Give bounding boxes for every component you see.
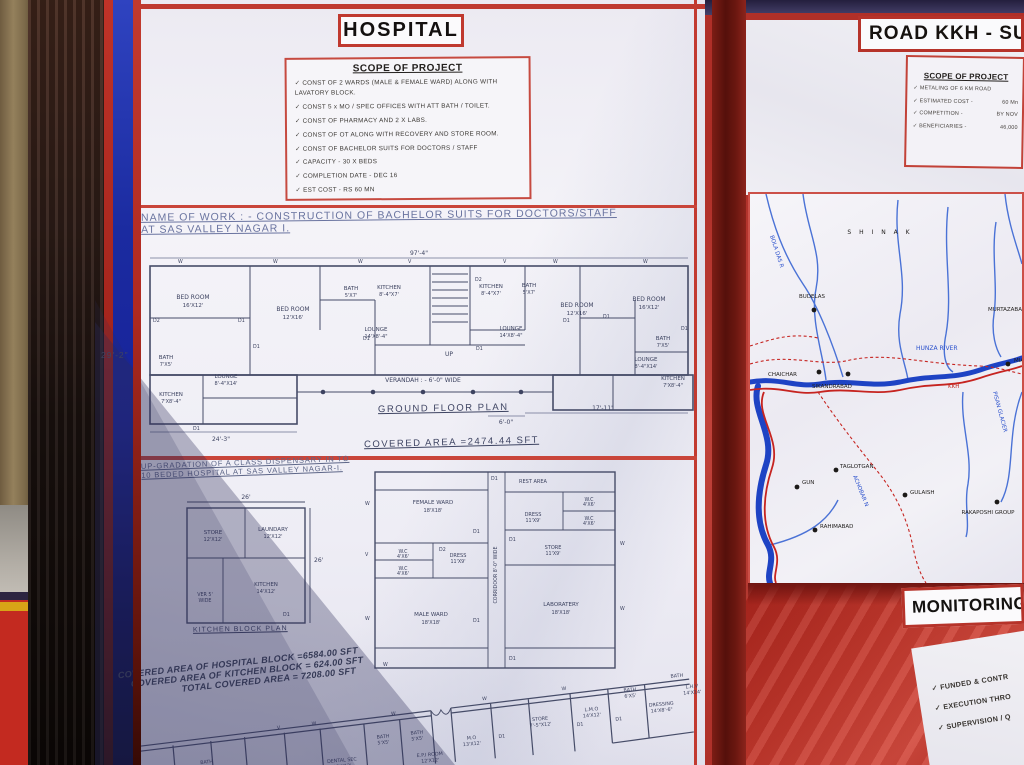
vent-marker: V [408,259,412,265]
room-size: 13'X12' [463,741,482,749]
room-size: 7'X5' [657,343,670,349]
vent-marker: V [365,552,369,558]
room-label: KITCHEN [159,392,183,398]
map-town-label: RAHIMABAD [820,524,853,530]
room-size: 5'X7' [345,293,358,299]
map-town-label: MURTAZABAD [988,307,1022,313]
room-label: BED ROOM [560,302,593,309]
window-marker: W [561,686,567,692]
map-town-label: TAGLOTGAN [839,464,874,470]
room-size: 11'X9' [525,518,540,524]
window-marker: W [273,259,278,265]
vent-marker: V [503,259,507,265]
map-town-label: RAKAPOSHI GROUP [961,510,1015,516]
route-map: S H I N A K BOLA DAS R HUNZA RIVER ACHOB… [750,194,1022,583]
room-size: 11'X9' [450,559,465,565]
monitoring-title: MONITORING [912,594,1024,618]
dim-label: 26' [314,557,324,564]
room-size: 8'-4"X7' [379,292,399,298]
map-town-label: CHAICHAR [768,372,797,378]
room-label: L.H.V [685,683,699,690]
notice-board-photo: HOSPITAL SCOPE OF PROJECT CONST OF 2 WAR… [0,0,1024,765]
road-scope-item: METALING OF 6 KM ROAD [913,85,991,92]
room-label: BED ROOM [632,296,665,303]
door-marker: D1 [509,656,516,662]
room-label: KITCHEN [479,284,503,290]
door-marker: D1 [603,314,610,320]
room-size: 7'X5' [160,362,173,368]
map-river-label: HUNZA RIVER [916,345,958,352]
room-size: 18'X18' [552,610,571,616]
room-label: LABORATERY [543,602,579,608]
room-size: 11'X9' [545,551,560,557]
door-marker: D1 [473,529,480,535]
door-marker: D1 [238,318,245,324]
door-marker: D2 [153,318,160,324]
window-marker: W [553,259,558,265]
room-label: BED ROOM [176,294,209,301]
monitoring-sheet: FUNDED & CONTR EXECUTION THRO SUPERVISIO… [911,625,1024,765]
room-label: FEMALE WARD [413,500,453,506]
window-marker: W [358,259,363,265]
room-size: 12'X16' [283,315,304,321]
door-marker: D1 [253,344,260,350]
door-marker: D1 [363,336,370,342]
room-size: 4'X6' [397,571,409,577]
room-size: 4'X6' [397,554,409,560]
room-label: BATH [522,283,537,289]
road-scope-box: SCOPE OF PROJECT METALING OF 6 KM ROAD E… [904,55,1024,169]
room-label: L.M.O [584,706,598,713]
road-scope-value: BY NOV [993,112,1018,118]
room-size: 18'X18' [424,508,443,514]
window-marker: W [620,541,625,547]
room-size: 7'X8'-4" [663,383,683,389]
map-town-label: BUDELAS [799,294,825,300]
door-marker: D2 [475,277,482,283]
road-scope-value [1015,87,1018,93]
window-marker: W [178,259,183,265]
room-size: 5'X7' [523,290,536,296]
map-river-label: BOLA DAS R [768,235,784,269]
door-marker: D1 [681,326,688,332]
board-divider-bar [712,0,746,765]
map-road-label: KKH [948,384,959,390]
room-label: BED ROOM [276,306,309,313]
room-label: DRESS [525,512,542,518]
dim-label: 26' [241,494,251,501]
up-label: UP [445,351,453,358]
road-scope-title: SCOPE OF PROJECT [914,71,1019,82]
map-poster: S H I N A K BOLA DAS R HUNZA RIVER ACHOB… [748,192,1024,585]
map-river-label: ACHOBAR N [851,475,869,508]
road-scope-item: COMPETITION - [913,110,963,117]
map-glacier-label: PISAN GLACIER [991,391,1008,433]
map-town-label: GULAISH [910,490,935,496]
corridor-label: CORRIDOOR 8'-0" WIDE [493,546,499,603]
room-label: LOUNGE [364,327,388,333]
dim-left: 29'-2" [101,350,129,360]
door-marker: D1 [491,476,498,482]
room-label: KITCHEN [377,285,401,291]
road-scope-value: 46,000 [997,124,1018,130]
dim-bottom-mid: 6'-0" [499,419,513,426]
verandah-label: VERANDAH : - 6'-0" WIDE [385,377,461,384]
door-marker: D1 [576,722,583,729]
road-title-box: ROAD KKH - SU [858,16,1024,52]
room-size: 14'X8'-4" [499,333,522,339]
door-marker: D1 [193,426,200,432]
monitoring-title-box: MONITORING [901,584,1024,628]
room-label: LOUNGE [214,374,238,380]
monitoring-item: FUNDED & CONTR [931,663,1024,693]
room-label: BATH [159,355,174,361]
window-marker: W [365,616,370,622]
room-size: 4'X6' [583,521,595,527]
room-label: REST AREA [519,479,548,485]
window-marker: W [365,501,370,507]
window-marker: W [482,696,488,702]
dim-bottom-right: 17'-11" [592,405,614,412]
map-town-dots [795,308,1011,533]
room-size: 4'X6' [583,502,595,508]
ground-floor-plan-caption: GROUND FLOOR PLAN [378,402,509,415]
road-scope-item: ESTIMATED COST - [913,98,973,105]
room-size: 8'-4"X7' [481,291,501,297]
dim-top: 97'-4" [410,250,428,257]
window-marker: W [620,606,625,612]
room-size: 16'X12' [639,305,660,311]
map-town-label: GUN [802,480,814,486]
room-label: M.O [467,735,477,742]
room-label: LOUNGE [634,357,658,363]
room-size: 7'X8'-4" [161,399,181,405]
board-frame-edge [28,0,104,765]
road-scope-value: 60 Mn [999,99,1018,105]
room-size: 8'-4"X14' [214,381,237,387]
dim-bottom-left: 24'-3" [212,436,230,443]
road-scope-item: BENEFICIARIES - [913,123,967,130]
map-town-label: MIA [1014,358,1022,364]
door-marker: D1 [498,733,505,740]
door-marker: D2 [439,547,446,553]
room-size: 6'X5' [624,693,637,700]
door-marker: D1 [473,618,480,624]
map-labels: S H I N A K BOLA DAS R HUNZA RIVER ACHOB… [768,229,1022,530]
door-marker: D1 [509,537,516,543]
room-label: BATH [623,687,637,694]
room-label: MALE WARD [414,612,448,618]
room-label: BATH [344,286,359,292]
door-marker: D1 [563,318,570,324]
room-size: 18'X18' [422,620,441,626]
room-label: BATH [656,336,671,342]
frame-red-stripe-inner [133,0,141,765]
window-marker: W [643,259,648,265]
room-size: 12'X16' [567,311,588,317]
room-label: LOUNGE [499,326,523,332]
door-marker: D1 [476,346,483,352]
map-region-label: S H I N A K [847,229,912,236]
room-label: KITCHEN [661,376,685,382]
room-label: STORE [545,545,562,551]
room-label: BATH [670,673,684,680]
road-title: ROAD KKH - SU [869,23,1024,45]
room-size: 8'-4"X14' [634,364,657,370]
room-label: DRESS [450,553,467,559]
door-marker: D1 [615,716,622,723]
map-town-label: SIKANDRABAD [812,384,852,390]
room-size: 16'X12' [183,303,204,309]
